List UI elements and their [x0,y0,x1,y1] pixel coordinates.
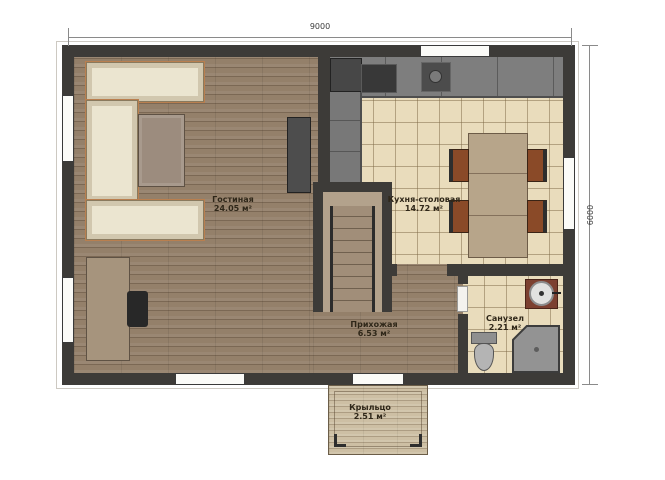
porch-bracket [334,434,337,447]
wall-kitchen-hallway [447,264,563,276]
shower-drain [534,347,539,352]
coffee-table [138,114,185,187]
room-area: 6.53 м² [324,329,424,338]
stair-wall-top [313,182,392,192]
room-name: Санузел [486,314,524,323]
kitchen-sink-bowl [429,70,442,83]
tall-cabinet [330,91,362,182]
staircase-steps [330,206,375,312]
washbasin-faucet [552,292,561,294]
desk-chair [127,291,148,327]
dimension-depth-label: 6000 [586,195,596,235]
room-label-bathroom: Санузел 2.21 м² [455,314,555,332]
washbasin-drain [539,291,544,296]
dining-chair [527,200,547,233]
wall-bottom [62,373,575,385]
bathroom-door-threshold [457,286,468,312]
porch-bracket [419,434,422,447]
wall-top [62,45,575,57]
window-top-kitchen [420,45,490,57]
stair-rail [330,206,333,312]
dimension-tick [582,384,598,385]
dining-chair [527,149,547,182]
dimension-tick [571,28,572,46]
tv-console [287,117,311,193]
room-name: Крыльцо [349,403,391,412]
cooktop [361,64,397,93]
wall-living-kitchen [318,57,330,187]
room-label-living: Гостиная 24.05 м² [183,195,283,213]
floor-plan-canvas: 9000 6000 [0,0,665,480]
dining-chair [449,149,469,182]
corner-sofa [86,62,204,102]
room-name: Гостиная [212,195,254,204]
window-right [563,157,575,230]
stair-rail [372,206,375,312]
stair-wall-left [313,182,323,312]
desk [86,257,130,361]
dimension-width-label: 9000 [300,22,340,32]
room-area: 2.51 м² [320,412,420,421]
room-label-porch: Крыльцо 2.51 м² [320,403,420,421]
wall-kitchen-hallway [387,264,397,276]
window-left-1 [62,95,74,162]
room-area: 24.05 м² [183,204,283,213]
room-label-hallway: Прихожая 6.53 м² [324,320,424,338]
room-area: 14.72 м² [374,204,474,213]
wall-bathroom-left [458,276,468,284]
fridge [330,58,362,92]
corner-sofa [86,100,138,202]
dimension-tick [68,28,69,46]
entrance-door [352,373,404,385]
dining-table [468,133,528,258]
room-label-kitchen: Кухня-столовая 14.72 м² [374,195,474,213]
window-bottom-living [175,373,245,385]
room-name: Прихожая [350,320,397,329]
room-name: Кухня-столовая [388,195,461,204]
room-area: 2.21 м² [455,323,555,332]
dimension-tick [582,45,598,46]
dimension-line-top [68,37,572,38]
window-left-2 [62,277,74,343]
